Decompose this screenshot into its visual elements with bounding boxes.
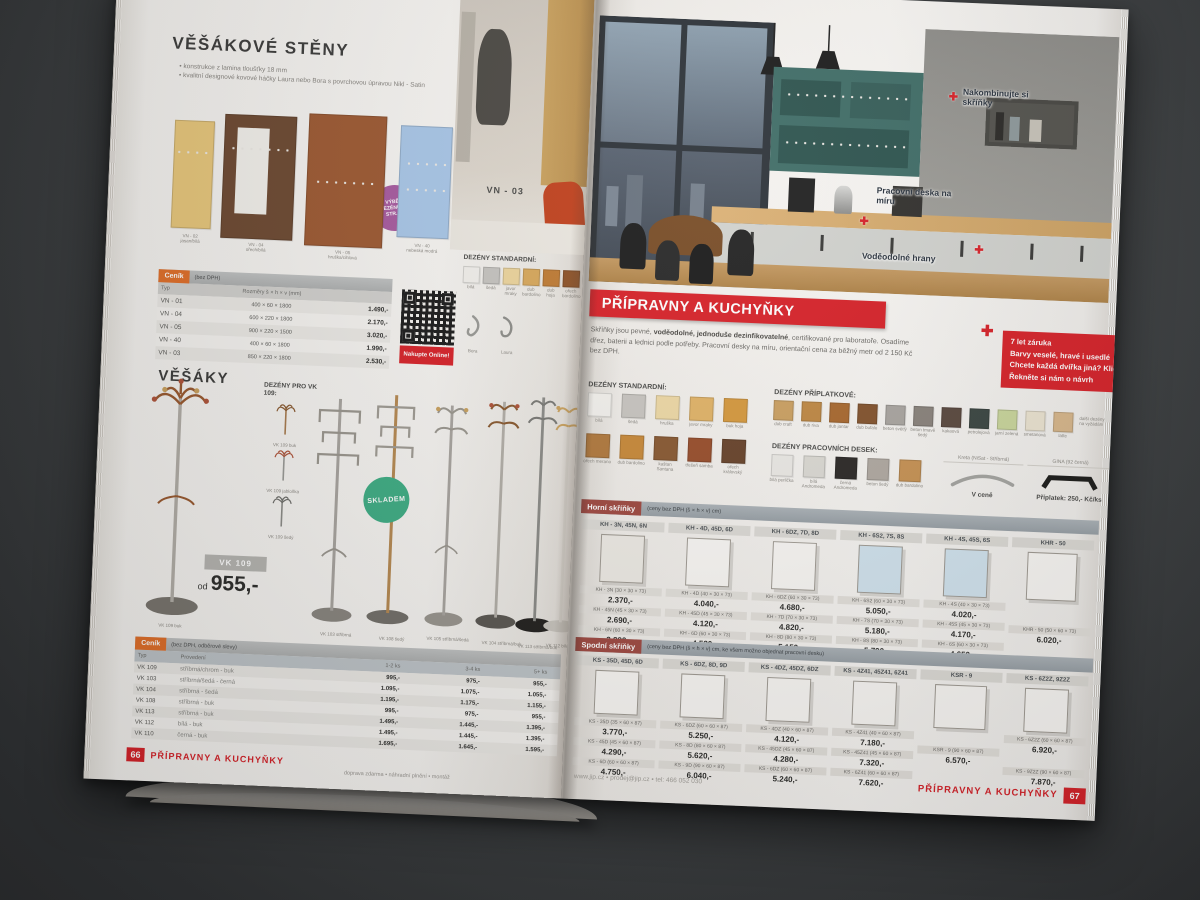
swatch-label: bílá	[462, 285, 479, 291]
dining-chair	[727, 229, 755, 276]
lower-cabinets-title: Spodní skříňky	[575, 637, 641, 654]
price-tag: Ceník	[158, 269, 190, 283]
cabinet-group-header: KH - 4D, 45D, 6D	[668, 523, 750, 536]
panel-color	[220, 114, 297, 241]
swatch-color	[857, 404, 878, 425]
swatch-label: latte	[1050, 434, 1076, 440]
swatch-color	[867, 458, 890, 481]
finish-swatch: ořech královský	[721, 439, 748, 476]
cabinet-icon-door-drawer	[594, 670, 640, 716]
stand-variant-label: VK 109 šedý	[266, 535, 296, 541]
swatch-color	[997, 409, 1018, 430]
swatch-color	[587, 392, 612, 417]
swatch-label: černá Andromeda	[831, 481, 859, 492]
stand-variant: VK 109 šedý	[270, 494, 298, 541]
hangwalls-price-table: Ceník (bez DPH) Typ Rozměry š × h × v (m…	[155, 269, 393, 369]
handle-note: Příplatek: 250,- Kč/ks	[1026, 494, 1112, 505]
catalog-spread: VN - 03 VÝBĚR DEZÉNŮ NA STR. 33 VĚŠÁKOVÉ…	[83, 0, 1128, 821]
panel-label: VN - 02jasan/bílá	[166, 233, 214, 245]
cabinet-group-header: KH - 6S2, 7S, 8S	[840, 530, 922, 543]
red-cross-marker: ✚	[859, 214, 869, 227]
finish-swatch: hruška	[655, 395, 682, 427]
dezeny-extra-note: další dezény na vyžádání	[1079, 416, 1109, 428]
handle-gina: GINA (92 černá) Příplatek: 250,- Kč/ks	[1026, 458, 1114, 505]
cabinet-group-header: KSR - 9	[920, 669, 1002, 682]
price-tag-note: (bez DPH)	[194, 274, 220, 281]
price-from: od 955,-	[197, 571, 259, 598]
finish-swatch: dub riva	[801, 401, 825, 429]
table-body: VN - 01400 × 60 × 18001.490,- VN - 04600…	[155, 294, 392, 369]
swatch-label: dub riva	[798, 423, 824, 429]
cabinet-icon-drawers	[851, 681, 897, 727]
stand-label: VK 103 stříbrná	[312, 632, 360, 639]
finish-swatch: dub bardolino	[898, 459, 924, 489]
cabinet-icon-open-shelves	[599, 534, 645, 584]
swatch-label: hruška	[653, 421, 681, 427]
swatch-color	[899, 459, 922, 482]
swatch-color	[619, 435, 644, 460]
swatch-label: buk hoja	[721, 424, 749, 430]
finish-swatch: beton světlý	[885, 405, 909, 433]
swatch-color	[483, 267, 501, 285]
cabinet-icon-glass-double	[857, 545, 903, 595]
dining-chair	[689, 243, 715, 284]
swatch-color	[771, 454, 794, 477]
finish-swatch: ořech merano	[585, 433, 612, 465]
footer-section-title: PŘÍPRAVNY A KUCHYŇKY	[150, 750, 284, 766]
swatch-label: bílá	[585, 418, 613, 424]
kettle	[834, 185, 853, 214]
finish-swatch: šedá	[621, 394, 648, 426]
dezeny-standard-title: DEZÉNY STANDARDNÍ:	[588, 381, 667, 391]
swatch-label: dub bardolino	[617, 461, 645, 467]
price-tag-note: (bez DPH, odběrové slevy)	[171, 642, 237, 651]
cabinet-column: KS - 6DZ, 8D, 9D KS - 6DZ (60 × 60 × 87)…	[658, 659, 745, 784]
panel-vn05	[304, 113, 387, 248]
finish-swatch: dub craft	[773, 400, 797, 428]
hook-icon	[464, 314, 481, 343]
swatch-color	[463, 266, 481, 284]
swatch-label: beton světlý	[882, 427, 908, 433]
swatch-label: dub jantar	[826, 424, 852, 430]
cabinet-column: KS - 4Z41, 45Z41, 6Z41 KS - 4Z41 (40 × 6…	[830, 666, 917, 791]
swatch-color	[655, 395, 680, 420]
swatch-label: dub craft	[770, 422, 796, 428]
finish-swatch: šedá	[482, 267, 500, 292]
red-cross-icon: ✚	[981, 322, 994, 341]
swatch-label: kaštan Santana	[651, 462, 679, 473]
cabinet-icon-double-door	[771, 541, 817, 591]
swatch-color	[687, 437, 712, 462]
swatch-label: šedá	[482, 286, 499, 292]
swatch-label: dub bufalo	[854, 425, 880, 431]
swatch-label: javor mraky	[687, 422, 715, 428]
city-building	[625, 175, 643, 228]
dezeny-desky-title: DEZÉNY PRACOVNÍCH DESEK:	[772, 443, 878, 454]
cabinet-group-header: KH - 3N, 45N, 6N	[582, 519, 664, 532]
shop-online-label: Nakupte Online!	[399, 345, 454, 365]
finish-swatch: smetanová	[1025, 411, 1049, 439]
coffee-machine	[788, 177, 815, 212]
swatch-color	[621, 394, 646, 419]
hook-bora: Bora	[464, 314, 484, 355]
photo-model-label: VN - 03	[486, 185, 524, 197]
finish-swatch: bílá	[462, 266, 480, 291]
dining-chair	[619, 222, 647, 269]
swatch-label: dub bardolino	[895, 483, 923, 489]
swatch-label: smetanová	[1022, 432, 1048, 438]
stand-label: VK 109 buk	[146, 623, 194, 630]
hangwalls-bullets: • konstrukce z lamina tloušťky 18 mm • k…	[179, 62, 430, 91]
lower-cabinets-subtitle: (ceny bez DPH (š × h × v) cm, ke všem mo…	[647, 644, 824, 657]
swatch-label: třešeň samba	[685, 463, 713, 469]
panel-label: VN - 40nebeská modrá	[394, 243, 450, 255]
cabinet-group-header: KH - 6DZ, 7D, 8D	[754, 526, 836, 539]
swatch-label: bílá Andromeda	[799, 479, 827, 490]
hallway-floor	[450, 219, 585, 255]
upper-cabinets-title: Horní skříňky	[581, 499, 641, 515]
price-value: 955,-	[210, 572, 259, 598]
finish-swatch: dub hoja	[542, 269, 560, 299]
swatch-label: jarní zelená	[994, 431, 1020, 437]
right-page: ✚ Nakombinujte si skříňky Pracovní deska…	[561, 0, 1129, 821]
intro-paragraph: Skříňky jsou pevné, voděodolné, jednoduš…	[590, 325, 921, 370]
city-building	[605, 186, 619, 226]
swatch-label: dub hoja	[542, 288, 559, 299]
finish-swatch: dub jantar	[829, 402, 853, 430]
stands-price-table: Ceník (bez DPH, odběrové slevy) Typ Prov…	[131, 637, 561, 757]
panel-vn02	[171, 120, 215, 230]
finish-swatch: beton šedý	[866, 458, 892, 488]
hook-label: Laura	[498, 350, 516, 356]
finish-swatch: latte	[1053, 412, 1077, 440]
finish-swatch: buk hoja	[723, 398, 750, 430]
panel-color	[304, 113, 387, 248]
swatch-label: dub bardolino	[522, 287, 539, 298]
upper-cabinets-subtitle: (ceny bez DPH (š × h × v) cm)	[647, 506, 721, 515]
cabinet-column: KS - 6Z2Z, 9Z2Z KS - 6Z2Z (60 × 60 × 87)…	[1002, 673, 1089, 790]
dining-chair	[655, 240, 681, 281]
finish-swatch: beton tmavě šedý	[912, 406, 936, 439]
cabinet-icon-drawer-door	[765, 677, 811, 723]
page-number: 66	[126, 747, 145, 762]
table-body: VK 109stříbrná/chrom - buk995,-975,-955,…	[131, 661, 560, 756]
cabinet-group-header: KS - 6DZ, 8D, 9D	[663, 659, 745, 672]
finish-swatch: ořech bardolino	[562, 270, 580, 300]
swatch-label: šedá	[619, 420, 647, 426]
finish-swatch: javor mraky	[689, 397, 716, 429]
finish-swatch: dub bufalo	[857, 404, 881, 432]
cabinet-column: KH - 3N, 45N, 6N KH - 3N (30 × 30 × 73)2…	[577, 519, 664, 648]
stand-variant: VK 109 buk	[273, 402, 301, 449]
handle-note: V ceně	[942, 490, 1022, 500]
swatch-color	[1025, 411, 1046, 432]
cabinet-icon-corner	[1026, 552, 1078, 602]
hallway-wall-panel	[456, 12, 476, 162]
price-tag: Ceník	[135, 637, 167, 651]
intro-text: Skříňky jsou pevné,	[591, 326, 654, 336]
swatch-label: ořech královský	[719, 465, 747, 476]
hallway-photo: VN - 03	[450, 0, 595, 255]
page-number: 67	[1063, 788, 1086, 805]
swatch-color	[585, 433, 610, 458]
left-page: VN - 03 VÝBĚR DEZÉNŮ NA STR. 33 VĚŠÁKOVÉ…	[83, 0, 595, 798]
dezeny-standard-title-left: DEZÉNY STANDARDNÍ:	[463, 254, 536, 264]
hook-label: Bora	[464, 349, 482, 355]
swatch-color	[653, 436, 678, 461]
cabinet-group-header: KS - 6Z2Z, 9Z2Z	[1006, 673, 1088, 686]
swatch-label: bílá perlička	[767, 478, 795, 484]
cabinet-icon-glass-single	[943, 548, 989, 598]
kitchen-photo: ✚ Nakombinujte si skříňky Pracovní deska…	[589, 15, 1120, 303]
swatch-color	[885, 405, 906, 426]
jar	[1029, 120, 1042, 142]
cabinet-column: KSR - 9 KSR - 9 (90 × 60 × 87)6.570,-	[917, 669, 1003, 768]
swatch-color	[689, 397, 714, 422]
swatch-color	[542, 269, 560, 287]
panel-vn04	[220, 114, 297, 241]
swatch-color	[801, 401, 822, 422]
swatch-color	[835, 457, 858, 480]
panel-label: VN - 04ořech/bílá	[224, 242, 288, 255]
cabinet-icon-two-drawers	[1023, 688, 1069, 734]
cabinet-icon-double-door-drawer	[680, 673, 726, 719]
stand-label: VK 108 šedý	[367, 636, 415, 643]
panel-color	[171, 120, 215, 230]
swatch-color	[1053, 412, 1074, 433]
hanging-coat	[475, 28, 513, 125]
price-prefix: od	[197, 581, 207, 591]
finish-swatch: petrolejová	[969, 408, 993, 436]
cabinet-icon-single-door	[685, 538, 731, 588]
dezeny-extra-title: DEZÉNY PŘÍPLATKOVÉ:	[774, 389, 856, 399]
bottle	[1009, 117, 1020, 141]
swatch-label: kakaová	[938, 429, 964, 435]
finish-swatch: dub bardolino	[619, 435, 646, 467]
stand-variant: VK 109 jabloňka	[272, 448, 302, 495]
hook-laura: Laura	[498, 315, 518, 356]
cabinet-column: KS - 4DZ, 45DZ, 6DZ KS - 4DZ (40 × 60 × …	[744, 662, 831, 787]
handle-kreta: Kreta (NiSat - Stříbrná) V ceně	[942, 454, 1024, 500]
handle-bar-icon	[1033, 468, 1106, 495]
cabinet-column: KH - 4S, 45S, 6S KH - 4S (40 × 30 × 73)4…	[921, 534, 1008, 663]
swatch-label: ořech bardolino	[562, 289, 579, 300]
swatch-label: ořech merano	[583, 459, 611, 465]
finish-swatch: javor mraky	[502, 268, 520, 298]
swatch-color	[723, 398, 748, 423]
swatch-label: beton tmavě šedý	[909, 428, 935, 439]
finish-swatch: bílá perlička	[770, 454, 796, 484]
swatch-color	[502, 268, 520, 286]
section-headline: PŘÍPRAVNY A KUCHYŇKY	[589, 289, 886, 328]
swatch-color	[562, 270, 580, 288]
panel-color	[396, 125, 453, 239]
tips-box: 7 let záruka Barvy veselé, hravé i usedl…	[1001, 331, 1129, 396]
panel-vn40	[396, 125, 453, 239]
handle-arc-icon	[946, 464, 1019, 491]
finish-swatch: třešeň samba	[687, 437, 714, 469]
finish-swatch: černá Andromeda	[834, 457, 860, 492]
photo-annotation: Nakombinujte si skříňky	[962, 87, 1053, 111]
cabinet-icon-combo	[933, 684, 987, 730]
panel-mirror	[234, 127, 270, 214]
hook-icon	[498, 315, 515, 344]
finish-swatch: bílá	[587, 392, 614, 424]
finish-swatch: kaštan Santana	[653, 436, 680, 473]
cabinet-column: KS - 35D, 45D, 6D KS - 35D (35 × 60 × 87…	[572, 655, 659, 780]
photo-annotation: Pracovní deska na míru	[876, 185, 957, 209]
panel-label: VN - 05hruška/cihlová	[307, 249, 377, 262]
swatch-color	[803, 455, 826, 478]
finish-swatch: jarní zelená	[997, 409, 1021, 437]
model-badge: VK 109	[204, 554, 267, 572]
swatch-color	[773, 400, 794, 421]
cabinet-group-header: KH - 4S, 45S, 6S	[926, 534, 1008, 547]
window-pane	[601, 22, 682, 145]
red-cross-marker: ✚	[948, 90, 958, 103]
finish-swatch: bílá Andromeda	[802, 455, 828, 490]
swatch-color	[941, 407, 962, 428]
swatch-color	[721, 439, 746, 464]
cabinet-group-header: KS - 4DZ, 45DZ, 6DZ	[748, 662, 830, 675]
swatch-label: beton šedý	[863, 482, 891, 488]
stand-label: VK 105 stříbrná/šedá	[423, 637, 471, 644]
finish-swatch: kakaová	[941, 407, 965, 435]
red-cross-marker: ✚	[974, 243, 984, 256]
swatch-color	[829, 402, 850, 423]
cabinet-column: KH - 6DZ, 7D, 8D KH - 6DZ (60 × 30 × 73)…	[749, 526, 836, 655]
swatch-label: javor mraky	[502, 287, 519, 298]
swatch-color	[913, 406, 934, 427]
swatch-color	[969, 408, 990, 429]
qr-code	[400, 289, 456, 345]
cabinet-group-header: KHR - 50	[1012, 537, 1094, 550]
swatch-label: petrolejová	[966, 430, 992, 436]
cabinet-column: KHR - 50 KHR - 50 (50 × 60 × 73)6.020,-	[1008, 537, 1094, 648]
bottle	[995, 112, 1004, 140]
cabinet-column: KH - 4D, 45D, 6D KH - 4D (40 × 30 × 73)4…	[663, 523, 750, 652]
teal-upper-cabinets	[769, 67, 923, 177]
finish-swatch: dub bardolino	[522, 268, 540, 298]
cabinet-group-header: KS - 35D, 45D, 6D	[577, 655, 659, 668]
cabinet-group-header: KS - 4Z41, 45Z41, 6Z41	[834, 666, 916, 679]
swatch-color	[522, 268, 540, 286]
footer-note: doprava zdarma • náhradní plnění • montá…	[344, 770, 450, 780]
page-title-hangwalls: VĚŠÁKOVÉ STĚNY	[172, 34, 350, 61]
cabinet-column: KH - 6S2, 7S, 8S KH - 6S2 (60 × 30 × 73)…	[835, 530, 922, 659]
